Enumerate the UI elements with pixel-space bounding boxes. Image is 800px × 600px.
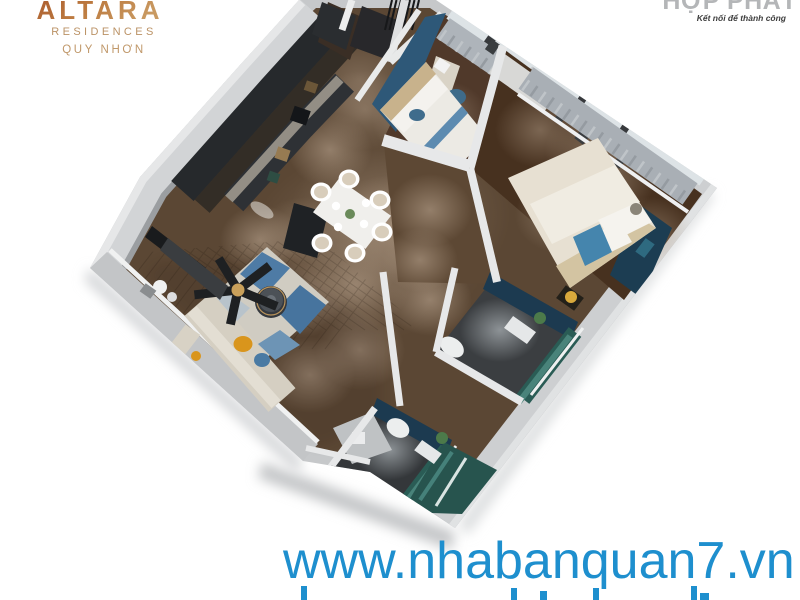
svg-text:ALTARA: ALTARA: [36, 0, 163, 25]
svg-text:RESIDENCES: RESIDENCES: [51, 26, 157, 38]
svg-text:QUY NHƠN: QUY NHƠN: [62, 44, 145, 56]
svg-text:Kết nối để thành công: Kết nối để thành công: [697, 13, 787, 23]
svg-text:www.nhabanquan7.vn: www.nhabanquan7.vn: [282, 532, 795, 590]
